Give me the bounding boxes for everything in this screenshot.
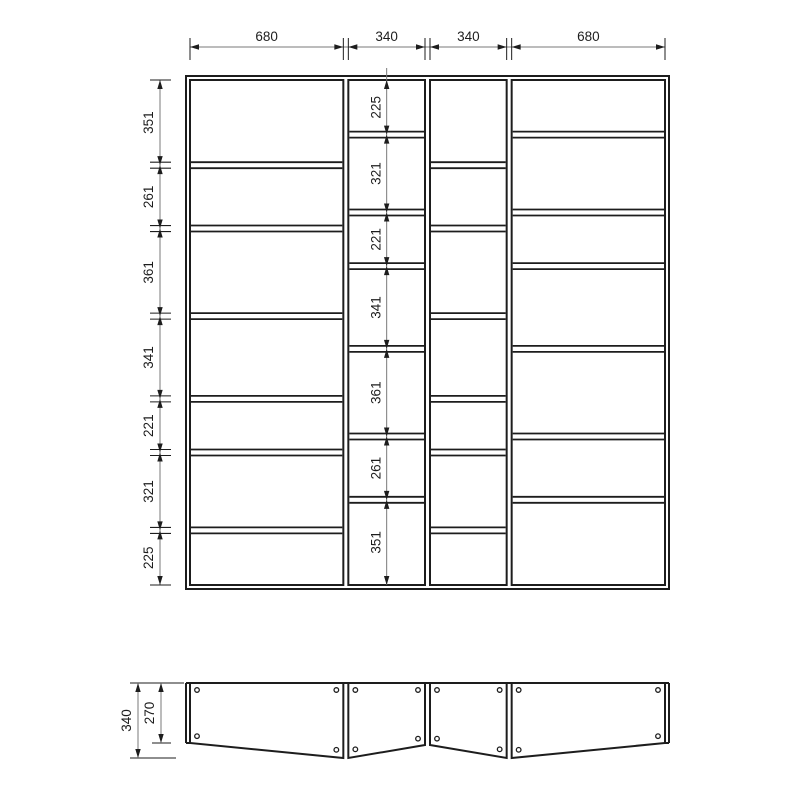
- width-dim-label: 680: [577, 29, 600, 44]
- dim-arrow: [157, 576, 162, 585]
- height-dim-label: 261: [141, 186, 156, 209]
- dim-arrow: [384, 491, 389, 500]
- dim-arrow: [135, 749, 140, 758]
- panel-3-outline: [430, 683, 507, 758]
- column-3-box: [430, 80, 507, 585]
- column-4-box: [512, 80, 665, 585]
- dim-arrow: [384, 500, 389, 509]
- column-1-box: [190, 80, 343, 585]
- height-dim-label: 261: [369, 457, 384, 480]
- dim-arrow: [157, 453, 162, 462]
- dim-arrow: [384, 257, 389, 266]
- dim-arrow: [384, 135, 389, 144]
- dim-arrow: [384, 80, 389, 89]
- dim-arrow: [384, 427, 389, 436]
- depth-dim-label: 340: [119, 709, 134, 732]
- dim-arrow: [430, 44, 439, 49]
- height-dim-label: 321: [141, 480, 156, 503]
- dim-arrow: [384, 126, 389, 135]
- dim-arrow: [157, 316, 162, 325]
- plan-dimension-chains: 340270: [119, 683, 184, 758]
- dim-arrow: [384, 340, 389, 349]
- dim-arrow: [157, 229, 162, 238]
- dim-arrow: [157, 444, 162, 453]
- dim-arrow: [157, 165, 162, 174]
- width-dim-label: 680: [255, 29, 278, 44]
- dim-arrow: [334, 44, 343, 49]
- height-dim-label: 361: [141, 261, 156, 284]
- height-dim-label: 221: [369, 228, 384, 251]
- dim-arrow: [384, 203, 389, 212]
- dim-arrow: [157, 220, 162, 229]
- height-dim-label: 361: [369, 381, 384, 404]
- dim-arrow: [384, 212, 389, 221]
- panel-1-outline: [190, 683, 343, 758]
- width-dim-label: 340: [457, 29, 480, 44]
- width-dim-label: 340: [375, 29, 398, 44]
- dim-arrow: [135, 683, 140, 692]
- height-dim-label: 351: [141, 111, 156, 134]
- dim-arrow: [157, 530, 162, 539]
- middle-dimension-chain: 225321221341361261351: [369, 68, 390, 585]
- shelving-unit-drawing: 6803403406803512613613412213212252253212…: [0, 0, 800, 800]
- panel-2-outline: [348, 683, 425, 758]
- dim-arrow: [157, 307, 162, 316]
- panel-4-outline: [512, 683, 665, 758]
- dim-arrow: [498, 44, 507, 49]
- left-dimension-chain: 351261361341221321225: [141, 80, 171, 585]
- height-dim-label: 351: [369, 531, 384, 554]
- dim-arrow: [158, 734, 163, 743]
- height-dim-label: 321: [369, 162, 384, 185]
- dim-arrow: [512, 44, 521, 49]
- dim-arrow: [384, 576, 389, 585]
- dim-arrow: [384, 349, 389, 358]
- top-dimension-chain: 680340340680: [190, 29, 665, 60]
- height-dim-label: 221: [141, 414, 156, 437]
- dim-arrow: [656, 44, 665, 49]
- dim-arrow: [348, 44, 357, 49]
- height-dim-label: 225: [141, 546, 156, 569]
- dim-arrow: [157, 156, 162, 165]
- height-dim-label: 225: [369, 96, 384, 119]
- cabinet-outline: [186, 76, 669, 589]
- front-view: [186, 76, 669, 589]
- depth-dim-label: 270: [142, 702, 157, 725]
- technical-drawing-canvas: 6803403406803512613613412213212252253212…: [0, 0, 800, 800]
- dim-arrow: [157, 80, 162, 89]
- dim-arrow: [384, 436, 389, 445]
- height-dim-label: 341: [141, 346, 156, 369]
- dim-arrow: [157, 399, 162, 408]
- dim-arrow: [190, 44, 199, 49]
- dim-arrow: [384, 266, 389, 275]
- dim-arrow: [158, 683, 163, 692]
- dim-arrow: [157, 521, 162, 530]
- dim-arrow: [157, 390, 162, 399]
- height-dim-label: 341: [369, 296, 384, 319]
- dim-arrow: [416, 44, 425, 49]
- plan-view: [186, 683, 669, 758]
